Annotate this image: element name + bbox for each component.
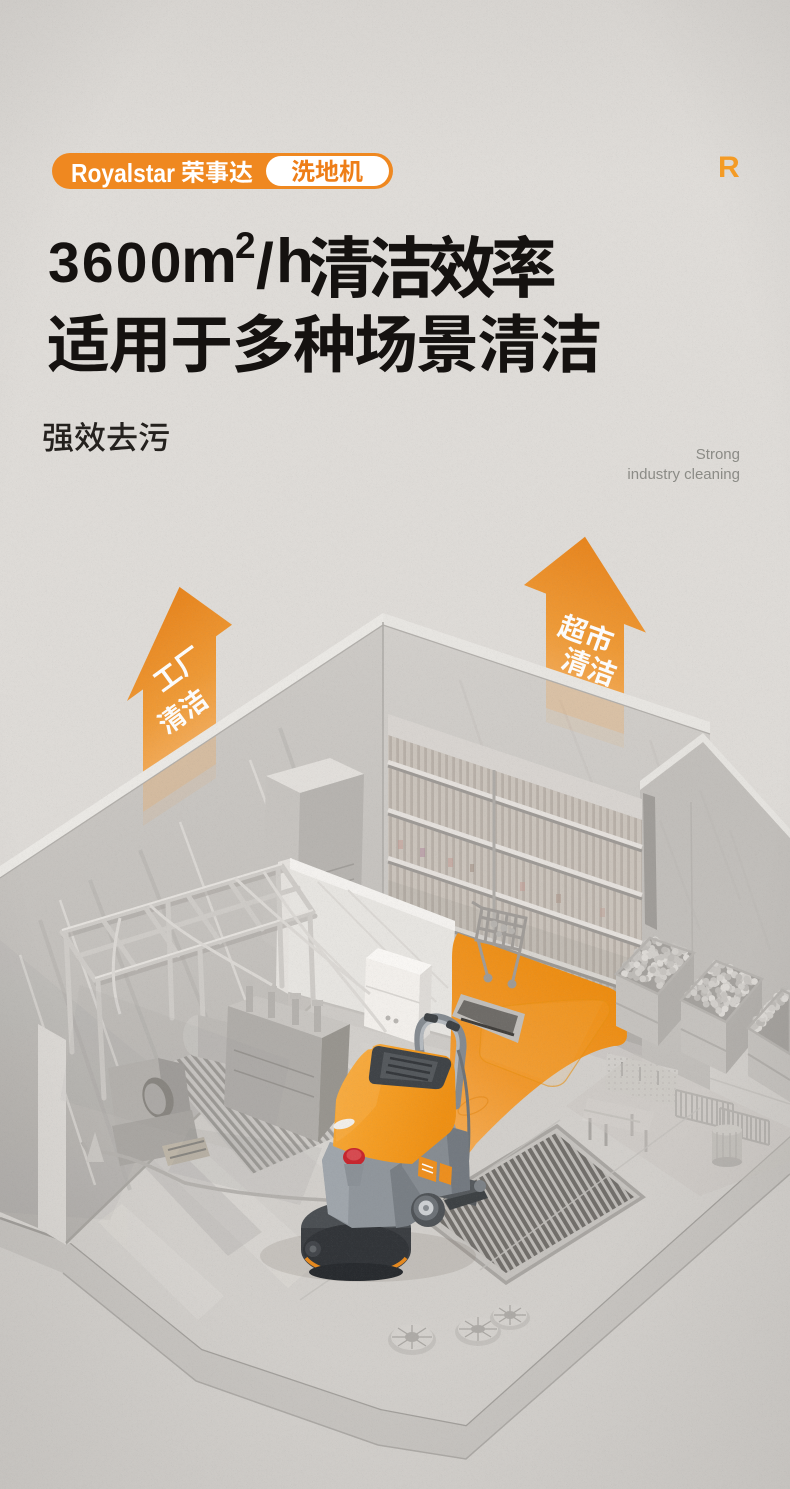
svg-text:/: / — [256, 230, 274, 302]
svg-text:h: h — [276, 227, 314, 296]
svg-text:Royalstar: Royalstar — [71, 158, 175, 188]
svg-text:m: m — [181, 226, 237, 296]
svg-text:industry cleaning: industry cleaning — [627, 466, 740, 483]
svg-text:2: 2 — [235, 225, 256, 266]
svg-text:Strong: Strong — [696, 446, 740, 463]
svg-text:3600: 3600 — [48, 231, 184, 295]
svg-text:R: R — [718, 151, 740, 184]
